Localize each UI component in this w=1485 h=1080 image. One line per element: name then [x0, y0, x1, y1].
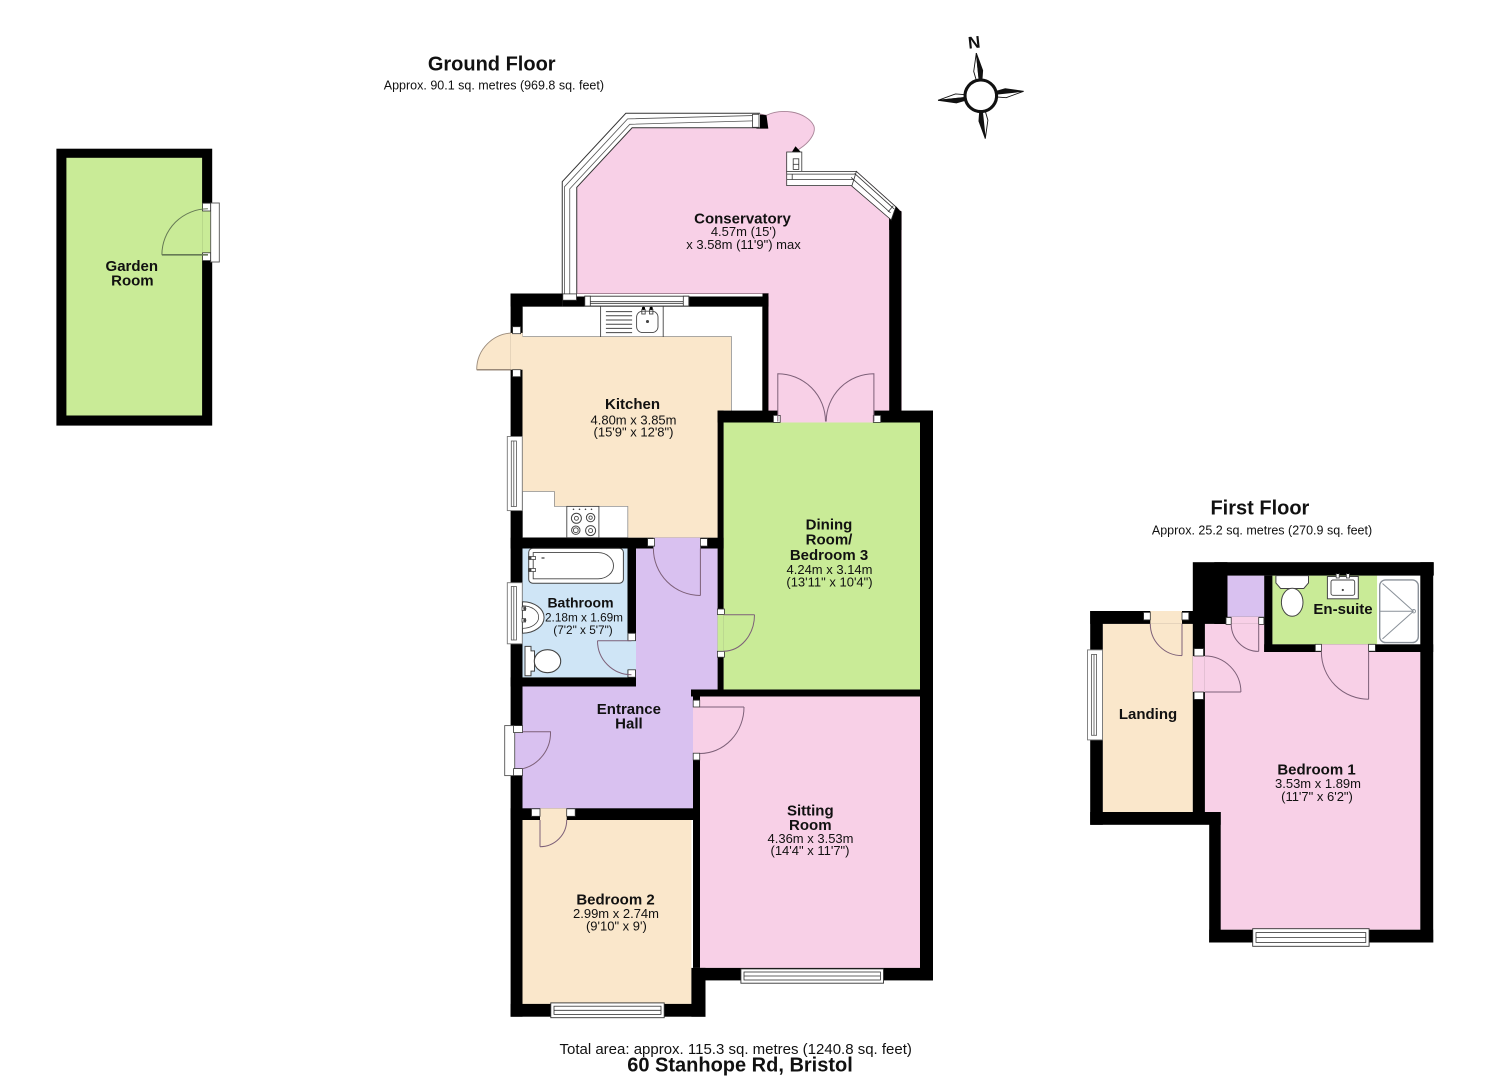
- svg-text:En-suite: En-suite: [1313, 601, 1372, 618]
- svg-text:N: N: [967, 33, 981, 53]
- svg-text:Ground Floor: Ground Floor: [428, 53, 556, 75]
- svg-text:(14'4" x 11'7"): (14'4" x 11'7"): [771, 843, 850, 858]
- svg-text:Approx. 90.1 sq. metres (969.8: Approx. 90.1 sq. metres (969.8 sq. feet): [384, 79, 604, 93]
- svg-text:Approx. 25.2 sq. metres (270.9: Approx. 25.2 sq. metres (270.9 sq. feet): [1152, 524, 1372, 538]
- svg-text:Room/: Room/: [806, 531, 853, 548]
- svg-text:(13'11" x 10'4"): (13'11" x 10'4"): [786, 574, 872, 589]
- svg-text:Landing: Landing: [1119, 706, 1177, 723]
- svg-text:(15'9" x 12'8"): (15'9" x 12'8"): [594, 425, 674, 440]
- svg-text:(9'10" x 9'): (9'10" x 9'): [586, 918, 647, 933]
- svg-text:Bathroom: Bathroom: [547, 594, 613, 610]
- svg-text:First Floor: First Floor: [1210, 498, 1309, 520]
- svg-text:(7'2" x 5'7"): (7'2" x 5'7"): [553, 623, 613, 637]
- svg-text:(11'7" x 6'2"): (11'7" x 6'2"): [1281, 789, 1353, 804]
- svg-text:x 3.58m (11'9") max: x 3.58m (11'9") max: [686, 237, 801, 252]
- svg-text:Kitchen: Kitchen: [605, 396, 660, 413]
- svg-text:60 Stanhope Rd, Bristol: 60 Stanhope Rd, Bristol: [627, 1055, 853, 1077]
- svg-text:Hall: Hall: [615, 716, 643, 733]
- svg-text:Room: Room: [111, 273, 154, 290]
